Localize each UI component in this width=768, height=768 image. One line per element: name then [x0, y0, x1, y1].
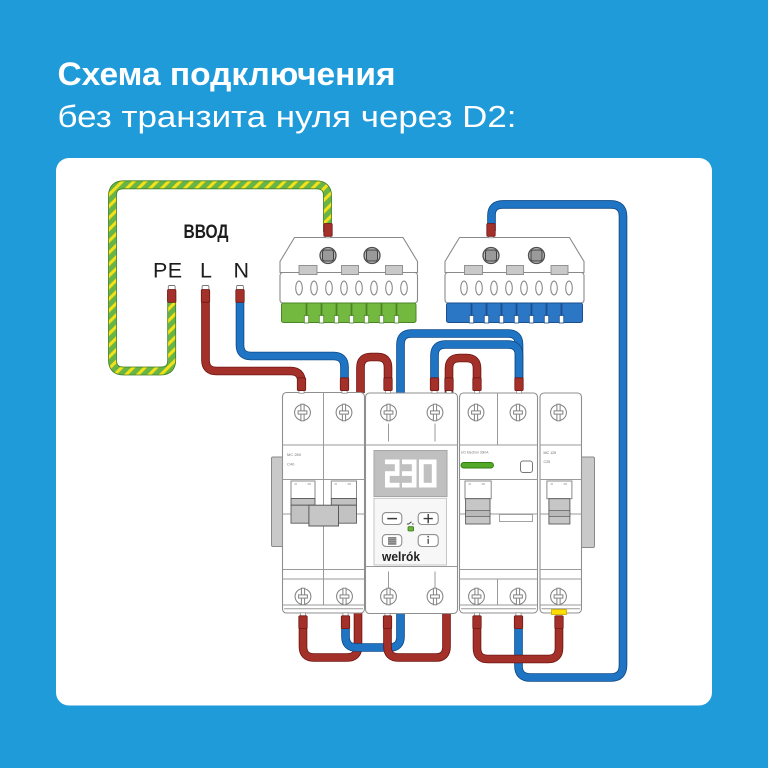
- svg-text:ВВОД: ВВОД: [184, 221, 229, 243]
- svg-text:C40: C40: [287, 462, 295, 467]
- svg-text:N: N: [234, 259, 250, 283]
- svg-text:PE: PE: [153, 259, 182, 283]
- svg-text:UO Electron 30mA: UO Electron 30mA: [461, 451, 489, 455]
- svg-text:без транзита нуля через D2:: без транзита нуля через D2:: [58, 100, 517, 134]
- svg-text:C25: C25: [544, 460, 551, 464]
- svg-text:L: L: [200, 259, 212, 283]
- svg-text:Схема подключения: Схема подключения: [58, 56, 396, 92]
- svg-text:MC 260: MC 260: [287, 452, 302, 457]
- svg-text:MC 125: MC 125: [544, 451, 557, 455]
- svg-text:welrók: welrók: [381, 550, 421, 564]
